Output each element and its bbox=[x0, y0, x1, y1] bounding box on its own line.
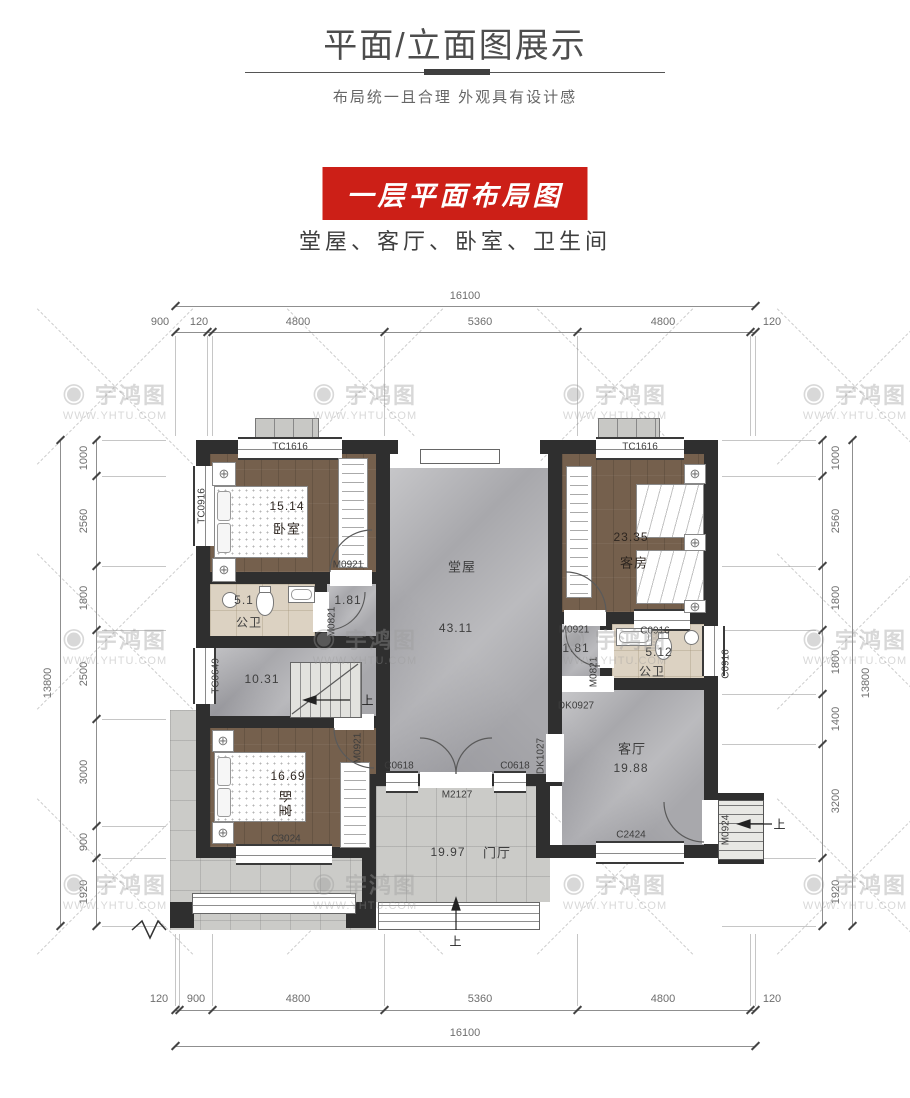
dim-seg: 1800 bbox=[830, 586, 842, 610]
dimension-line bbox=[852, 440, 853, 926]
dim-seg: 1000 bbox=[78, 446, 90, 470]
watermark-dash bbox=[777, 798, 910, 954]
nightstand-lamp-icon bbox=[684, 600, 706, 613]
wall bbox=[376, 454, 390, 786]
dim-seg: 1400 bbox=[830, 707, 842, 731]
code-M0924: M0924 bbox=[721, 815, 732, 846]
code-M0921: M0921 bbox=[559, 625, 590, 636]
dim-seg: 1800 bbox=[78, 586, 90, 610]
watermark: ◉ 宇鸿图WWW.YHTU.COM bbox=[803, 378, 907, 422]
code-C0916: C0916 bbox=[640, 626, 669, 637]
extension-line bbox=[750, 336, 751, 436]
extension-line bbox=[207, 336, 208, 436]
area-foyer: 19.97 bbox=[430, 845, 465, 859]
area-stair-hall: 10.31 bbox=[244, 672, 279, 686]
extension-line bbox=[755, 336, 756, 436]
room-bed-topleft: 卧室 bbox=[273, 519, 301, 538]
area-bath-left: 5.1 bbox=[234, 593, 254, 607]
wall bbox=[196, 636, 376, 648]
extension-line bbox=[722, 744, 816, 745]
window-C2424 bbox=[596, 841, 684, 864]
extension-line bbox=[722, 926, 816, 927]
toilet-icon bbox=[256, 590, 274, 616]
code-C0916: C0916 bbox=[721, 649, 732, 678]
patio-steps bbox=[192, 893, 356, 914]
area-bed-bottomleft: 16.69 bbox=[270, 769, 305, 783]
dim-seg: 2560 bbox=[78, 509, 90, 533]
dim-seg: 1000 bbox=[830, 446, 842, 470]
area-living: 19.88 bbox=[613, 761, 648, 775]
area-hall: 43.11 bbox=[439, 621, 473, 635]
floor-badge: 一层平面布局图 bbox=[323, 167, 588, 220]
watermark: ◉ 宇鸿图WWW.YHTU.COM bbox=[803, 623, 907, 667]
extension-line bbox=[212, 934, 213, 1006]
opening-DK1027 bbox=[546, 734, 564, 782]
dim-seg: 5360 bbox=[468, 993, 492, 1005]
watermark-url: WWW.YHTU.COM bbox=[63, 410, 167, 422]
entry-steps-front bbox=[378, 902, 540, 930]
nightstand-lamp-icon bbox=[212, 730, 234, 752]
watermark: ◉ 宇鸿图WWW.YHTU.COM bbox=[803, 868, 907, 912]
extension-line bbox=[102, 630, 166, 631]
extension-line bbox=[722, 476, 816, 477]
dim-seg: 120 bbox=[763, 993, 781, 1005]
dim-left-total: 13800 bbox=[42, 668, 54, 699]
dim-seg: 900 bbox=[187, 993, 205, 1005]
extension-line bbox=[102, 719, 166, 720]
page-subtitle: 布局统一且合理 外观具有设计感 bbox=[0, 86, 910, 107]
watermark-dash bbox=[777, 553, 910, 709]
watermark-brand: ◉ 宇鸿图 bbox=[63, 623, 167, 655]
watermark-brand: ◉ 宇鸿图 bbox=[803, 623, 907, 655]
dim-seg: 2500 bbox=[78, 662, 90, 686]
watermark-url: WWW.YHTU.COM bbox=[803, 900, 907, 912]
window-C0618-left bbox=[386, 771, 418, 793]
code-C0618: C0618 bbox=[500, 761, 529, 772]
code-DK1027: DK1027 bbox=[536, 738, 547, 774]
dimension-line bbox=[175, 1010, 755, 1011]
watermark-url: WWW.YHTU.COM bbox=[803, 655, 907, 667]
extension-line bbox=[722, 630, 816, 631]
extension-line bbox=[750, 934, 751, 1006]
extension-line bbox=[102, 440, 166, 441]
dim-seg: 1920 bbox=[830, 880, 842, 904]
watermark-brand: ◉ 宇鸿图 bbox=[803, 378, 907, 410]
watermark-brand: ◉ 宇鸿图 bbox=[803, 868, 907, 900]
wardrobe bbox=[566, 466, 592, 598]
room-hall: 堂屋 bbox=[448, 557, 476, 576]
code-TC0916: TC0916 bbox=[197, 488, 208, 524]
dimension-line bbox=[96, 440, 97, 926]
watermark-dash bbox=[777, 308, 910, 464]
watermark: ◉ 宇鸿图WWW.YHTU.COM bbox=[563, 378, 667, 422]
divider-accent bbox=[424, 69, 490, 75]
extension-line bbox=[175, 336, 176, 436]
bathtub-icon bbox=[288, 586, 315, 603]
dim-seg: 5360 bbox=[468, 316, 492, 328]
watermark-dash bbox=[777, 798, 910, 954]
code-M0921: M0921 bbox=[353, 733, 364, 764]
dim-seg: 3000 bbox=[78, 760, 90, 784]
watermark-url: WWW.YHTU.COM bbox=[803, 410, 907, 422]
code-M2127: M2127 bbox=[442, 790, 473, 801]
dim-seg: 4800 bbox=[286, 993, 310, 1005]
watermark-dash bbox=[777, 553, 910, 709]
dimension-tick bbox=[751, 301, 760, 310]
extension-line bbox=[102, 566, 166, 567]
watermark: ◉ 宇鸿图WWW.YHTU.COM bbox=[313, 378, 417, 422]
wall bbox=[536, 774, 550, 858]
code-M0921: M0921 bbox=[333, 560, 364, 571]
extension-line bbox=[577, 934, 578, 1006]
extension-line bbox=[722, 694, 816, 695]
sink-icon bbox=[684, 630, 699, 645]
room-living: 客厅 bbox=[618, 739, 646, 758]
extension-line bbox=[212, 336, 213, 436]
dim-seg: 120 bbox=[150, 993, 168, 1005]
dim-seg: 4800 bbox=[651, 993, 675, 1005]
nightstand-lamp-icon bbox=[212, 462, 236, 486]
pillow bbox=[217, 757, 231, 786]
watermark: ◉ 宇鸿图WWW.YHTU.COM bbox=[563, 868, 667, 912]
room-bath-left: 公卫 bbox=[236, 614, 262, 631]
room-foyer: 门厅 bbox=[483, 843, 511, 862]
extension-line bbox=[102, 858, 166, 859]
nightstand-lamp-icon bbox=[212, 822, 234, 844]
code-C0618: C0618 bbox=[384, 761, 413, 772]
dimension-line bbox=[822, 440, 823, 926]
room-bed-bottomleft: 卧室 bbox=[277, 790, 296, 818]
watermark-brand: ◉ 宇鸿图 bbox=[63, 378, 167, 410]
extension-line bbox=[384, 934, 385, 1006]
dim-right-total: 13800 bbox=[860, 668, 872, 699]
wardrobe bbox=[338, 458, 368, 568]
code-TC1616: TC1616 bbox=[272, 442, 308, 453]
door-gap-M0921-topleft bbox=[330, 570, 372, 586]
dim-seg: 120 bbox=[763, 316, 781, 328]
area-corridor-right: 1.81 bbox=[562, 641, 589, 655]
extension-line bbox=[722, 566, 816, 567]
dimension-tick bbox=[818, 921, 827, 930]
code-M0821: M0821 bbox=[589, 657, 600, 688]
extension-line bbox=[102, 826, 166, 827]
watermark-url: WWW.YHTU.COM bbox=[313, 410, 417, 422]
staircase bbox=[290, 662, 362, 718]
extension-line bbox=[179, 934, 180, 1006]
dim-bottom-total: 16100 bbox=[450, 1027, 481, 1039]
code-TC1616: TC1616 bbox=[622, 442, 658, 453]
watermark-brand: ◉ 宇鸿图 bbox=[313, 378, 417, 410]
dim-seg: 900 bbox=[78, 833, 90, 851]
dim-top-total: 16100 bbox=[450, 290, 481, 302]
extension-line bbox=[755, 934, 756, 1006]
dimension-line bbox=[175, 306, 755, 307]
watermark-brand: ◉ 宇鸿图 bbox=[563, 868, 667, 900]
extension-line bbox=[722, 440, 816, 441]
code-TC0649: TC0649 bbox=[211, 658, 222, 694]
window-C3024 bbox=[236, 844, 332, 865]
area-bath-right: 5.12 bbox=[645, 645, 672, 659]
dimension-line bbox=[60, 440, 61, 926]
nightstand-lamp-icon bbox=[684, 534, 706, 551]
extension-line bbox=[102, 476, 166, 477]
dim-seg: 900 bbox=[151, 316, 169, 328]
watermark-brand: ◉ 宇鸿图 bbox=[563, 378, 667, 410]
area-bed-topleft: 15.14 bbox=[269, 499, 304, 513]
floor-foyer bbox=[376, 786, 550, 902]
nightstand-lamp-icon bbox=[212, 558, 236, 582]
dimension-line bbox=[175, 332, 755, 333]
nightstand-lamp-icon bbox=[684, 464, 706, 484]
watermark: ◉ 宇鸿图WWW.YHTU.COM bbox=[63, 378, 167, 422]
dimension-tick bbox=[56, 921, 65, 930]
dimension-tick bbox=[751, 1041, 760, 1050]
room-bath-right: 公卫 bbox=[639, 663, 665, 680]
floor-plan-page: 平面/立面图展示 布局统一且合理 外观具有设计感 一层平面布局图 堂屋、客厅、卧… bbox=[0, 0, 910, 1098]
dim-seg: 3200 bbox=[830, 789, 842, 813]
watermark-dash bbox=[777, 308, 910, 464]
door-gap-M2127 bbox=[420, 772, 492, 788]
area-guest: 23.35 bbox=[613, 530, 648, 544]
dim-seg: 4800 bbox=[651, 316, 675, 328]
dim-seg: 120 bbox=[190, 316, 208, 328]
dim-seg: 1920 bbox=[78, 880, 90, 904]
door-gap-M0821-right bbox=[598, 630, 614, 668]
pillow bbox=[217, 788, 231, 817]
extension-line bbox=[175, 934, 176, 1006]
wall bbox=[170, 902, 194, 928]
code-C3024: C3024 bbox=[271, 834, 300, 845]
pillow bbox=[217, 491, 231, 521]
watermark-url: WWW.YHTU.COM bbox=[563, 900, 667, 912]
extension-line bbox=[102, 926, 166, 927]
dimension-tick bbox=[92, 921, 101, 930]
rooms-summary: 堂屋、客厅、卧室、卫生间 bbox=[0, 224, 910, 256]
pillow bbox=[217, 523, 231, 553]
area-corridor-left: 1.81 bbox=[334, 593, 361, 607]
side-steps-up-label: 上 bbox=[773, 816, 786, 833]
page-title: 平面/立面图展示 bbox=[0, 18, 910, 67]
code-C2424: C2424 bbox=[616, 830, 645, 841]
hall-top-window bbox=[420, 449, 500, 464]
entry-up-label: 上 bbox=[449, 933, 462, 950]
dim-seg: 4800 bbox=[286, 316, 310, 328]
dimension-tick bbox=[848, 921, 857, 930]
dimension-line bbox=[175, 1046, 755, 1047]
code-DK0927: DK0927 bbox=[558, 701, 594, 712]
break-symbol bbox=[132, 921, 166, 938]
room-guest: 客房 bbox=[620, 553, 648, 572]
extension-line bbox=[384, 336, 385, 436]
dim-seg: 1800 bbox=[830, 650, 842, 674]
extension-line bbox=[577, 336, 578, 436]
window-C0618-right bbox=[494, 771, 526, 793]
code-M0821: M0821 bbox=[327, 607, 338, 638]
dim-seg: 2560 bbox=[830, 509, 842, 533]
stairs-up-label: 上 bbox=[361, 692, 374, 709]
wardrobe bbox=[340, 762, 370, 848]
